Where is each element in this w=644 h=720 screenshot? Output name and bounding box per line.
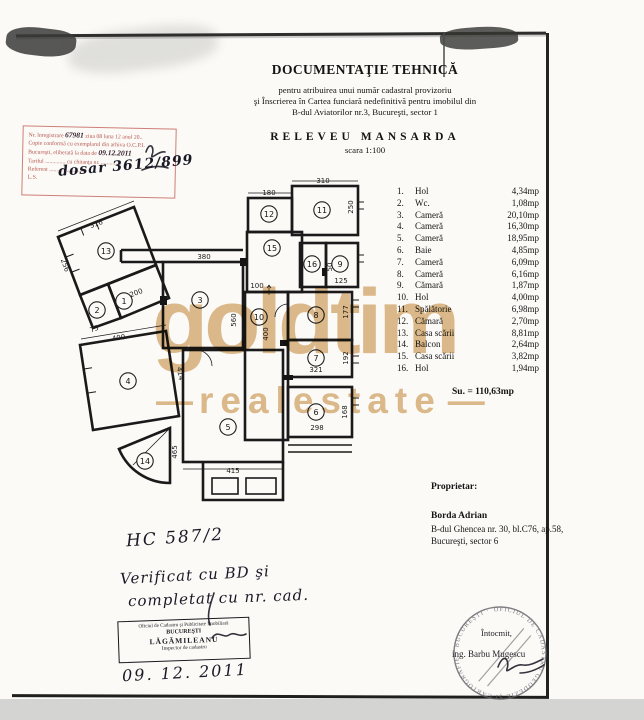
registry-issued-date-handwritten: 09.12.2011 (98, 148, 132, 158)
dimension-label: 400 (111, 333, 125, 343)
room-row-number: 5. (397, 233, 415, 245)
dimension-label: 298 (310, 424, 323, 432)
room-row: 15.Casa scării3,82mp (397, 351, 543, 363)
room-row-area: 6,98mp (489, 304, 539, 316)
document-subtitle: pentru atribuirea unui număr cadastral p… (195, 85, 535, 118)
room-row-area: 4,00mp (489, 292, 539, 304)
dimension-label: 125 (334, 277, 347, 285)
scanned-document-page: Nr. înregistrare 67981 ziua 08 luna 12 a… (0, 0, 644, 720)
registry-number-handwritten: 67981 (65, 130, 84, 139)
dimension-label: 465 (171, 445, 179, 458)
room-row-name: Spălătorie (415, 304, 489, 316)
registry-date-fields: ziua 08 luna 12 anul 20.. (85, 134, 142, 141)
room-row-number: 12. (397, 316, 415, 328)
room-row-name: Casa scării (415, 351, 489, 363)
room-number-label: 4 (125, 377, 130, 386)
room-row-area: 4,85mp (489, 245, 539, 257)
room-row-name: Cămară (415, 280, 489, 292)
dimension-label: 177 (342, 305, 350, 318)
room-row-name: Wc. (415, 198, 489, 210)
room-row: 10.Hol4,00mp (397, 292, 543, 304)
handwritten-date: 09. 12. 2011 (122, 660, 249, 686)
drawing-title: RELEVEU MANSARDA (195, 131, 535, 143)
room-row: 4.Cameră16,30mp (397, 221, 543, 233)
room-row-number: 13. (397, 328, 415, 340)
dimension-label: 560 (230, 313, 238, 326)
dimension-label: 400 (262, 327, 270, 340)
room-list: 1.Hol4,34mp2.Wc.1,08mp3.Cameră20,10mp4.C… (397, 186, 543, 375)
registry-issued-label: Bucureşti, eliberată la data de (28, 150, 97, 157)
room-row-name: Casa scării (415, 328, 489, 340)
plan-dimension-labels: 3162562007540041446541538056018031025010… (59, 177, 355, 475)
room-row: 13.Casa scării8,81mp (397, 328, 543, 340)
room-row: 6.Baie4,85mp (397, 245, 543, 257)
room-row-area: 6,09mp (489, 257, 539, 269)
owner-name: Borda Adrian (431, 511, 487, 521)
dimension-label: 200 (129, 287, 144, 299)
room-row: 1.Hol4,34mp (397, 186, 543, 198)
room-row-name: Cămară (415, 316, 489, 328)
room-row: 2.Wc.1,08mp (397, 198, 543, 210)
room-row-area: 8,81mp (489, 328, 539, 340)
document-title: DOCUMENTAŢIE TEHNICĂ (195, 62, 535, 78)
registry-label: Nr. înregistrare (28, 133, 63, 140)
room-number-label: 7 (313, 354, 318, 363)
dimension-label: 321 (309, 366, 322, 374)
room-number-label: 6 (313, 408, 318, 417)
room-row-number: 7. (397, 257, 415, 269)
room-number-label: 13 (101, 247, 111, 256)
handwritten-reference: HC 587/2 (125, 525, 224, 552)
room-row-area: 2,70mp (489, 316, 539, 328)
room-row-number: 9. (397, 280, 415, 292)
room-row-area: 18,95mp (489, 233, 539, 245)
room-row-name: Cameră (415, 257, 489, 269)
room-row-name: Cameră (415, 269, 489, 281)
room-number-label: 2 (94, 306, 99, 315)
room-row: 14.Balcon2,64mp (397, 339, 543, 351)
room-number-label: 3 (197, 296, 202, 305)
title-block: DOCUMENTAŢIE TEHNICĂ pentru atribuirea u… (195, 62, 535, 155)
room-row-number: 8. (397, 269, 415, 281)
dimension-label: 256 (59, 258, 71, 274)
dimension-label: 168 (341, 405, 349, 418)
room-number-label: 14 (140, 457, 150, 466)
room-row: 12.Cămară2,70mp (397, 316, 543, 328)
owner-heading: Proprietar: (431, 482, 477, 492)
room-number-label: 11 (317, 206, 327, 215)
dimension-label: 192 (342, 351, 350, 364)
handwritten-verified-line2: completat cu nr. cad. (128, 586, 309, 610)
room-number-label: 16 (307, 260, 317, 269)
plan-walls (58, 186, 358, 500)
dimension-label: 310 (316, 177, 329, 185)
owner-address-line1: B-dul Ghencea nr. 30, bl.C76, ap.58, (431, 524, 563, 534)
room-row-number: 1. (397, 186, 415, 198)
room-row-area: 16,30mp (489, 221, 539, 233)
room-row: 7.Cameră6,09mp (397, 257, 543, 269)
room-row-number: 2. (397, 198, 415, 210)
room-row-number: 11. (397, 304, 415, 316)
dimension-label: 100 (250, 282, 263, 290)
room-row-name: Cameră (415, 221, 489, 233)
dimension-label: 50 (326, 263, 334, 272)
dimension-label: 180 (262, 189, 275, 197)
room-row-name: Hol (415, 292, 489, 304)
room-row-name: Baie (415, 245, 489, 257)
owner-address-line2: Bucureşti, sector 6 (431, 536, 498, 546)
room-row-name: Hol (415, 186, 489, 198)
scan-bottom-margin (0, 699, 644, 720)
room-row-name: Cameră (415, 233, 489, 245)
room-row-area: 1,08mp (489, 198, 539, 210)
room-row-name: Hol (415, 363, 489, 375)
room-row-area: 1,87mp (489, 280, 539, 292)
room-row-number: 4. (397, 221, 415, 233)
room-row: 11.Spălătorie6,98mp (397, 304, 543, 316)
room-row: 8.Cameră6,16mp (397, 269, 543, 281)
room-row-area: 3,82mp (489, 351, 539, 363)
drawing-scale: scara 1:100 (195, 145, 535, 155)
room-number-label: 12 (264, 210, 274, 219)
cadastre-office-stamp: Oficiul de Cadastru şi Publicitate Imobi… (117, 617, 250, 664)
round-stamp-strokes (472, 628, 537, 688)
room-row-area: 4,34mp (489, 186, 539, 198)
room-row-number: 10. (397, 292, 415, 304)
handwritten-verified-line1: Verificat cu BD şi (120, 562, 271, 588)
room-row-number: 16. (397, 363, 415, 375)
room-row-number: 15. (397, 351, 415, 363)
room-row-name: Cameră (415, 210, 489, 222)
room-row: 9.Cămară1,87mp (397, 280, 543, 292)
room-number-label: 5 (225, 423, 230, 432)
room-row: 3.Cameră20,10mp (397, 210, 543, 222)
room-row-area: 2,64mp (489, 339, 539, 351)
room-row-number: 3. (397, 210, 415, 222)
round-surveyor-stamp: OFICIUL DE CADASTRU GEODEZIE ŞI CARTOGRA… (438, 591, 562, 715)
room-number-label: 8 (313, 311, 318, 320)
room-number-label: 1 (121, 297, 126, 306)
room-row: 5.Cameră18,95mp (397, 233, 543, 245)
room-number-label: 9 (337, 260, 342, 269)
dimension-label: 415 (226, 467, 239, 475)
room-row-number: 6. (397, 245, 415, 257)
room-row-name: Balcon (415, 339, 489, 351)
subtitle-line-3: B-dul Aviatorilor nr.3, Bucureşti, secto… (195, 107, 535, 118)
subtitle-line-2: şi Înscrierea în Cartea funciară nedefin… (195, 96, 535, 107)
usable-area-total: Su. = 110,63mp (452, 387, 514, 397)
room-number-label: 15 (267, 244, 277, 253)
room-row-number: 14. (397, 339, 415, 351)
dimension-label: 250 (347, 200, 355, 213)
subtitle-line-1: pentru atribuirea unui număr cadastral p… (195, 85, 535, 96)
scan-blob-top-left (5, 24, 78, 60)
room-row-area: 20,10mp (489, 210, 539, 222)
room-row-area: 1,94mp (489, 363, 539, 375)
room-row-area: 6,16mp (489, 269, 539, 281)
room-number-label: 10 (254, 313, 264, 322)
floor-plan-svg: 12345678910111213141516 3162562007540041… (40, 165, 395, 510)
dimension-label: 380 (197, 253, 210, 261)
dimension-label: 414 (175, 366, 185, 381)
round-stamp-ring-text: OFICIUL DE CADASTRU GEODEZIE ŞI CARTOGRA… (447, 600, 553, 706)
room-row: 16.Hol1,94mp (397, 363, 543, 375)
scan-blob-top-right (439, 24, 518, 51)
